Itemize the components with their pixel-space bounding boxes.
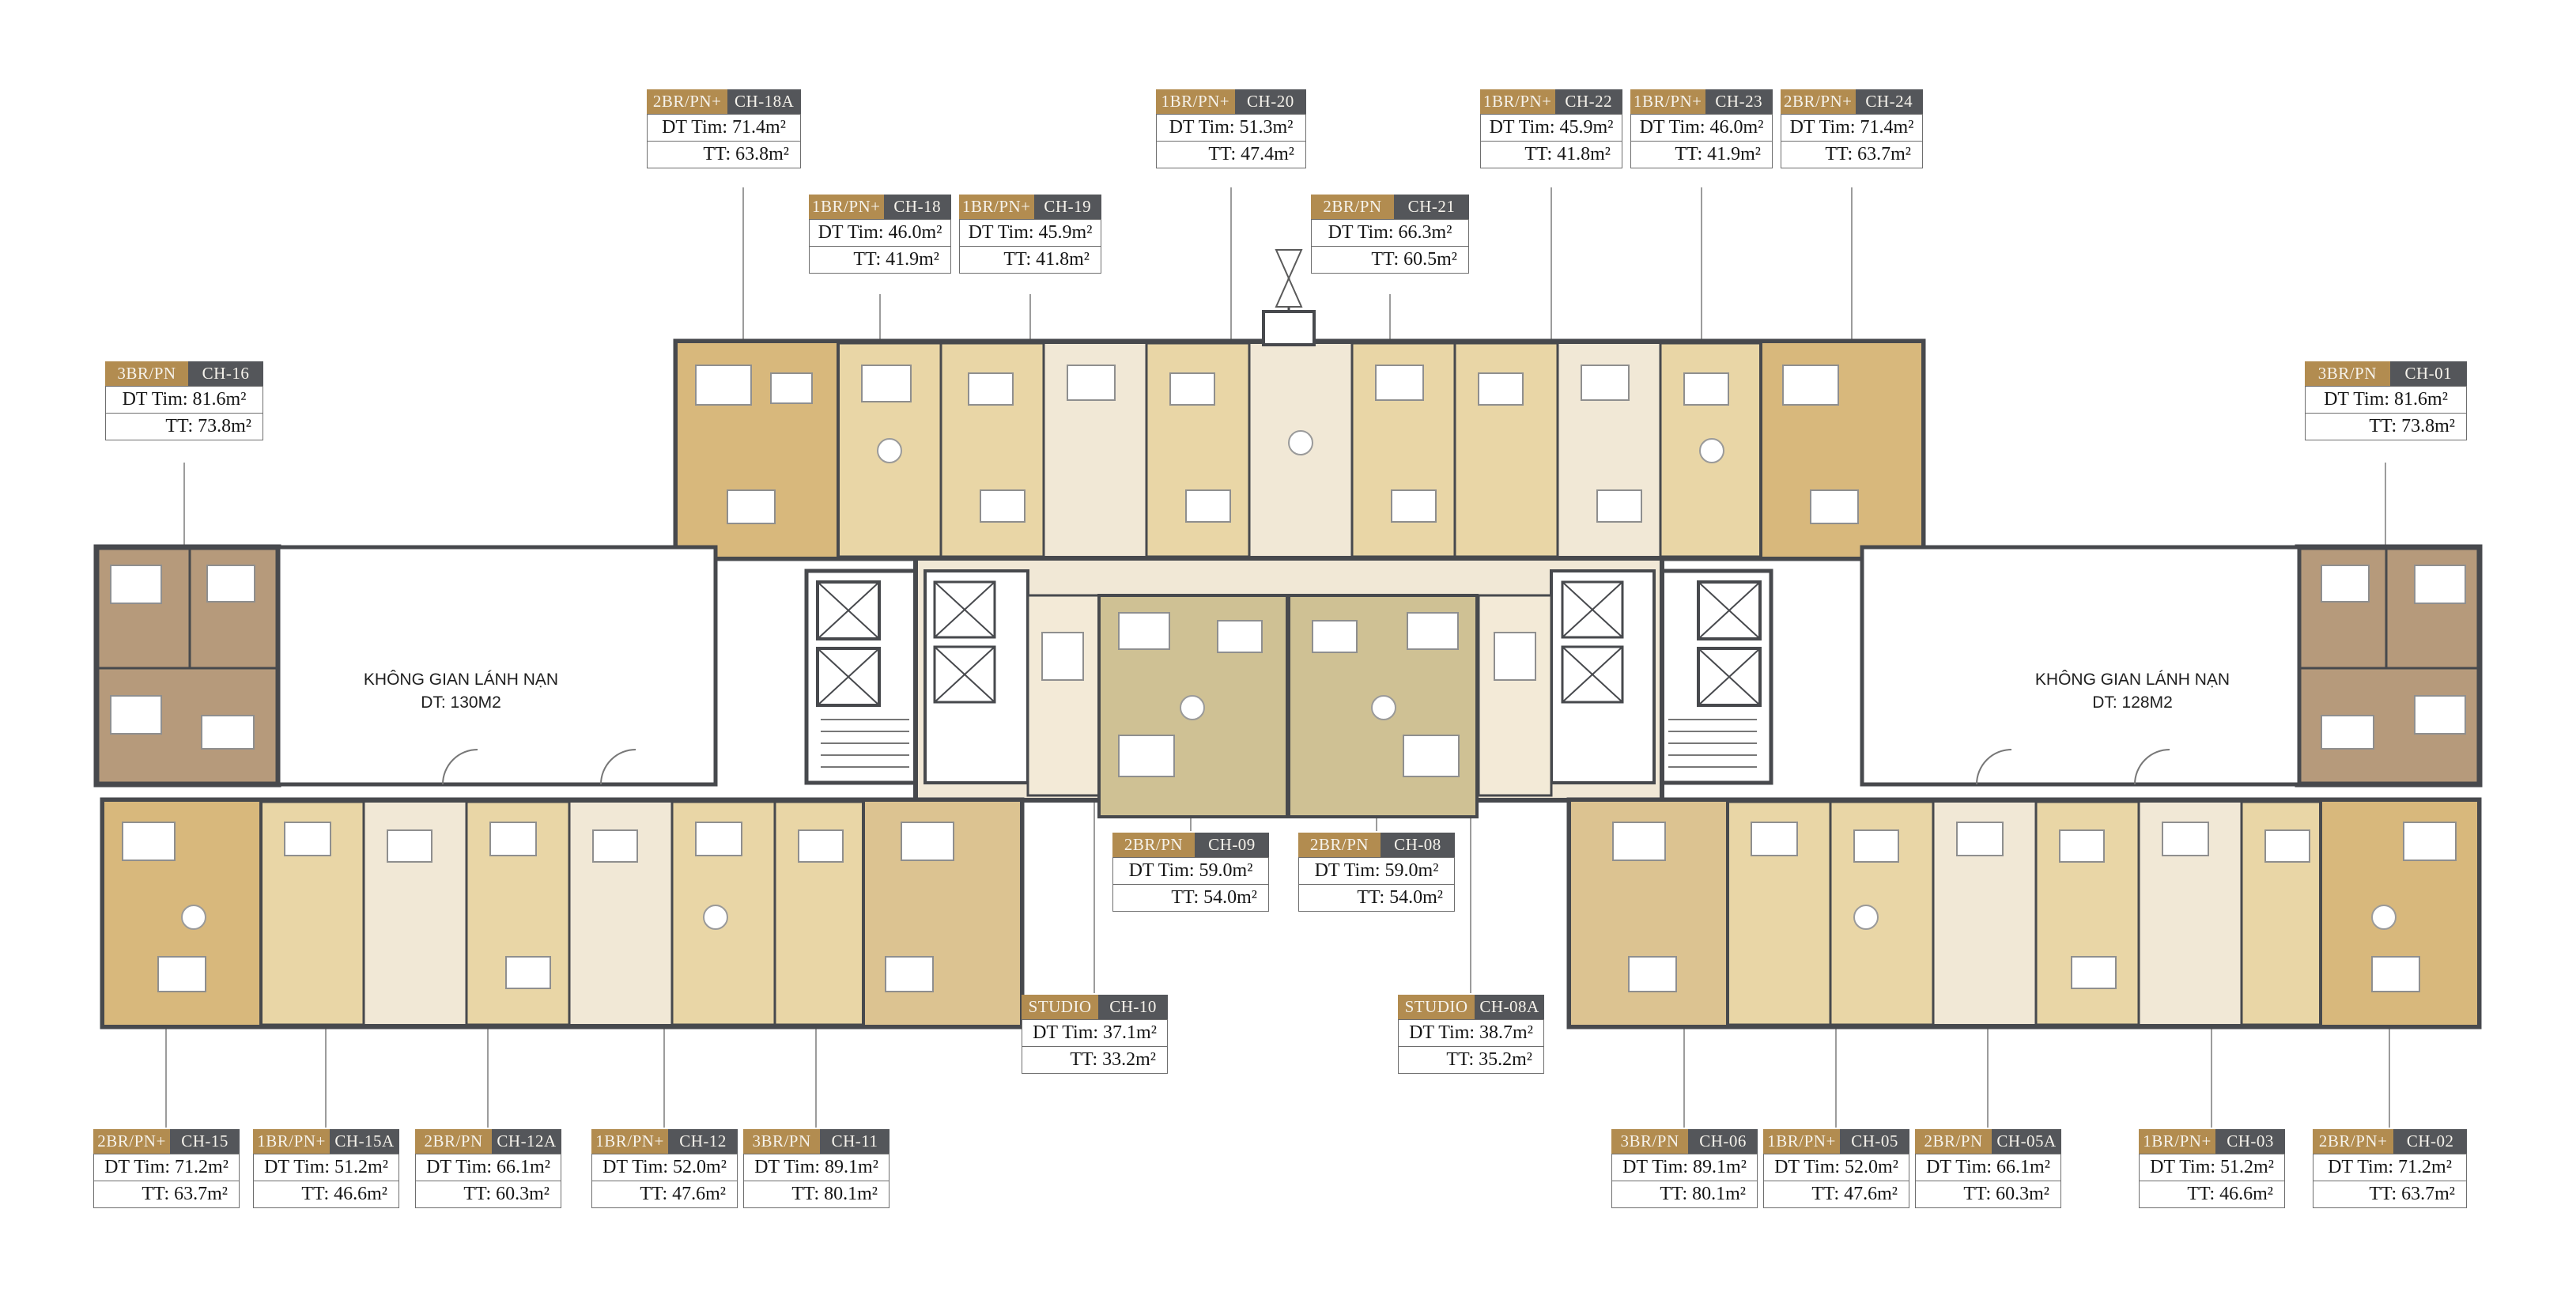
unit-area-gross: DT Tim: 66.3m² [1311,219,1469,247]
unit-card-CH-10: STUDIOCH-10 DT Tim: 37.1m² TT: 33.2m² [1022,995,1168,1074]
unit-area-gross: DT Tim: 81.6m² [2305,386,2467,414]
unit-area-net: TT: 80.1m² [1611,1181,1758,1208]
unit-area-gross: DT Tim: 71.2m² [93,1154,240,1181]
unit-code-badge: CH-12 [668,1129,738,1154]
unit-area-net: TT: 63.7m² [93,1181,240,1208]
unit-code-badge: CH-23 [1705,89,1773,114]
center-section [916,558,1662,817]
unit-code-badge: CH-05 [1840,1129,1909,1154]
right-wing [1656,547,2480,784]
unit-code-badge: CH-15 [170,1129,240,1154]
unit-card-CH-09: 2BR/PNCH-09 DT Tim: 59.0m² TT: 54.0m² [1112,833,1269,912]
unit-area-net: TT: 41.9m² [1630,141,1773,168]
unit-area-gross: DT Tim: 71.4m² [1781,114,1923,142]
unit-area-gross: DT Tim: 66.1m² [1915,1154,2061,1181]
unit-code-badge: CH-05A [1992,1129,2061,1154]
unit-card-CH-08: 2BR/PNCH-08 DT Tim: 59.0m² TT: 54.0m² [1298,833,1455,912]
refuge-size: DT: 128M2 [1998,691,2267,714]
refuge-area-left [278,547,716,784]
unit-card-CH-12: 1BR/PN+CH-12 DT Tim: 52.0m² TT: 47.6m² [591,1129,738,1208]
unit-area-gross: DT Tim: 71.2m² [2313,1154,2467,1181]
unit-area-net: TT: 60.3m² [415,1181,561,1208]
refuge-size: DT: 130M2 [327,691,595,714]
unit-area-net: TT: 47.4m² [1156,141,1306,168]
unit-type-badge: STUDIO [1398,995,1475,1019]
unit-card-CH-15A: 1BR/PN+CH-15A DT Tim: 51.2m² TT: 46.6m² [253,1129,399,1208]
unit-area-net: TT: 80.1m² [743,1181,890,1208]
unit-type-badge: 3BR/PN [105,361,188,386]
unit-area-gross: DT Tim: 52.0m² [591,1154,738,1181]
unit-card-CH-12A: 2BR/PNCH-12A DT Tim: 66.1m² TT: 60.3m² [415,1129,561,1208]
unit-code-badge: CH-01 [2390,361,2467,386]
unit-code-badge: CH-15A [330,1129,399,1154]
unit-type-badge: 2BR/PN [1311,195,1394,219]
unit-code-badge: CH-12A [492,1129,561,1154]
unit-card-CH-24: 2BR/PN+CH-24 DT Tim: 71.4m² TT: 63.7m² [1781,89,1923,168]
unit-area-gross: DT Tim: 52.0m² [1763,1154,1909,1181]
unit-code-badge: CH-08A [1475,995,1544,1019]
unit-area-gross: DT Tim: 46.0m² [809,219,951,247]
unit-area-gross: DT Tim: 89.1m² [743,1154,890,1181]
unit-code-badge: CH-21 [1394,195,1469,219]
stair-bump [1263,312,1314,345]
floor-plan-page: KHÔNG GIAN LÁNH NẠN DT: 130M2 KHÔNG GIAN… [0,0,2576,1311]
unit-area-net: TT: 54.0m² [1112,884,1269,912]
right-core [1656,571,1771,783]
unit-area-net: TT: 35.2m² [1398,1046,1544,1074]
unit-area-net: TT: 46.6m² [253,1181,399,1208]
refuge-area-right [1862,547,2299,784]
unit-card-CH-06: 3BR/PNCH-06 DT Tim: 89.1m² TT: 80.1m² [1611,1129,1758,1208]
unit-card-CH-20: 1BR/PN+CH-20 DT Tim: 51.3m² TT: 47.4m² [1156,89,1306,168]
unit-area-net: TT: 73.8m² [105,413,263,440]
unit-type-badge: 2BR/PN+ [2313,1129,2393,1154]
unit-area-gross: DT Tim: 81.6m² [105,386,263,414]
unit-type-badge: 1BR/PN+ [959,195,1034,219]
unit-area-gross: DT Tim: 51.2m² [253,1154,399,1181]
unit-area-gross: DT Tim: 59.0m² [1298,857,1455,885]
unit-area-net: TT: 60.5m² [1311,246,1469,274]
unit-code-badge: CH-11 [820,1129,890,1154]
unit-type-badge: STUDIO [1022,995,1098,1019]
unit-area-gross: DT Tim: 51.2m² [2139,1154,2285,1181]
unit-area-gross: DT Tim: 46.0m² [1630,114,1773,142]
unit-area-gross: DT Tim: 45.9m² [1480,114,1622,142]
unit-area-net: TT: 41.8m² [1480,141,1622,168]
unit-code-badge: CH-03 [2215,1129,2285,1154]
unit-type-badge: 1BR/PN+ [809,195,884,219]
unit-type-badge: 1BR/PN+ [1763,1129,1840,1154]
unit-CH-10 [1028,595,1099,795]
unit-code-badge: CH-22 [1555,89,1623,114]
unit-type-badge: 2BR/PN [415,1129,492,1154]
unit-code-badge: CH-24 [1856,89,1924,114]
unit-card-CH-05: 1BR/PN+CH-05 DT Tim: 52.0m² TT: 47.6m² [1763,1129,1909,1208]
unit-area-gross: DT Tim: 51.3m² [1156,114,1306,142]
center-left-core [925,571,1028,783]
unit-CH-08A [1479,595,1551,795]
unit-card-CH-16: 3BR/PNCH-16 DT Tim: 81.6m² TT: 73.8m² [105,361,263,440]
unit-type-badge: 1BR/PN+ [253,1129,330,1154]
unit-area-net: TT: 41.9m² [809,246,951,274]
unit-area-net: TT: 73.8m² [2305,413,2467,440]
refuge-name: KHÔNG GIAN LÁNH NẠN [1998,668,2267,691]
unit-card-CH-08A: STUDIOCH-08A DT Tim: 38.7m² TT: 35.2m² [1398,995,1544,1074]
unit-type-badge: 2BR/PN+ [93,1129,170,1154]
unit-type-badge: 1BR/PN+ [2139,1129,2215,1154]
unit-type-badge: 3BR/PN [1611,1129,1688,1154]
unit-card-CH-01: 3BR/PNCH-01 DT Tim: 81.6m² TT: 73.8m² [2305,361,2467,440]
unit-type-badge: 2BR/PN [1112,833,1195,857]
unit-card-CH-03: 1BR/PN+CH-03 DT Tim: 51.2m² TT: 46.6m² [2139,1129,2285,1208]
unit-card-CH-05A: 2BR/PNCH-05A DT Tim: 66.1m² TT: 60.3m² [1915,1129,2061,1208]
unit-card-CH-18A: 2BR/PN+CH-18A DT Tim: 71.4m² TT: 63.8m² [647,89,801,168]
unit-card-CH-22: 1BR/PN+CH-22 DT Tim: 45.9m² TT: 41.8m² [1480,89,1622,168]
unit-code-badge: CH-19 [1034,195,1102,219]
unit-type-badge: 1BR/PN+ [1156,89,1235,114]
unit-area-gross: DT Tim: 89.1m² [1611,1154,1758,1181]
unit-card-CH-19: 1BR/PN+CH-19 DT Tim: 45.9m² TT: 41.8m² [959,195,1101,274]
unit-area-net: TT: 63.7m² [2313,1181,2467,1208]
unit-type-badge: 1BR/PN+ [1480,89,1555,114]
unit-area-gross: DT Tim: 71.4m² [647,114,801,142]
unit-area-net: TT: 47.6m² [1763,1181,1909,1208]
unit-code-badge: CH-10 [1098,995,1168,1019]
bottom-right-wing [1569,800,2479,1026]
refuge-label-right: KHÔNG GIAN LÁNH NẠN DT: 128M2 [1998,668,2267,715]
unit-card-CH-23: 1BR/PN+CH-23 DT Tim: 46.0m² TT: 41.9m² [1630,89,1773,168]
top-wing [676,250,1923,558]
unit-type-badge: 3BR/PN [743,1129,820,1154]
floor-plan [0,0,2576,1311]
unit-card-CH-21: 2BR/PNCH-21 DT Tim: 66.3m² TT: 60.5m² [1311,195,1469,274]
refuge-label-left: KHÔNG GIAN LÁNH NẠN DT: 130M2 [327,668,595,715]
unit-area-gross: DT Tim: 37.1m² [1022,1019,1168,1047]
unit-code-badge: CH-02 [2393,1129,2467,1154]
unit-code-badge: CH-18A [727,89,801,114]
unit-code-badge: CH-06 [1688,1129,1758,1154]
unit-area-net: TT: 63.7m² [1781,141,1923,168]
center-right-core [1551,571,1654,783]
bottom-left-wing [103,800,1022,1026]
unit-area-net: TT: 41.8m² [959,246,1101,274]
unit-card-CH-18: 1BR/PN+CH-18 DT Tim: 46.0m² TT: 41.9m² [809,195,951,274]
unit-type-badge: 1BR/PN+ [1630,89,1705,114]
unit-area-gross: DT Tim: 66.1m² [415,1154,561,1181]
unit-code-badge: CH-09 [1195,833,1269,857]
unit-card-CH-11: 3BR/PNCH-11 DT Tim: 89.1m² TT: 80.1m² [743,1129,890,1208]
refuge-name: KHÔNG GIAN LÁNH NẠN [327,668,595,691]
unit-code-badge: CH-18 [884,195,952,219]
unit-code-badge: CH-16 [188,361,263,386]
unit-code-badge: CH-08 [1381,833,1455,857]
unit-area-net: TT: 60.3m² [1915,1181,2061,1208]
unit-code-badge: CH-20 [1235,89,1306,114]
unit-area-net: TT: 47.6m² [591,1181,738,1208]
unit-type-badge: 3BR/PN [2305,361,2390,386]
unit-type-badge: 2BR/PN+ [647,89,727,114]
unit-card-CH-02: 2BR/PN+CH-02 DT Tim: 71.2m² TT: 63.7m² [2313,1129,2467,1208]
unit-area-net: TT: 63.8m² [647,141,801,168]
left-wing [96,547,921,784]
unit-area-net: TT: 33.2m² [1022,1046,1168,1074]
unit-type-badge: 1BR/PN+ [591,1129,668,1154]
left-core [806,571,921,783]
unit-area-gross: DT Tim: 59.0m² [1112,857,1269,885]
unit-area-net: TT: 54.0m² [1298,884,1455,912]
unit-type-badge: 2BR/PN+ [1781,89,1856,114]
unit-type-badge: 2BR/PN [1915,1129,1992,1154]
unit-type-badge: 2BR/PN [1298,833,1381,857]
unit-area-gross: DT Tim: 38.7m² [1398,1019,1544,1047]
unit-area-net: TT: 46.6m² [2139,1181,2285,1208]
unit-card-CH-15: 2BR/PN+CH-15 DT Tim: 71.2m² TT: 63.7m² [93,1129,240,1208]
unit-area-gross: DT Tim: 45.9m² [959,219,1101,247]
